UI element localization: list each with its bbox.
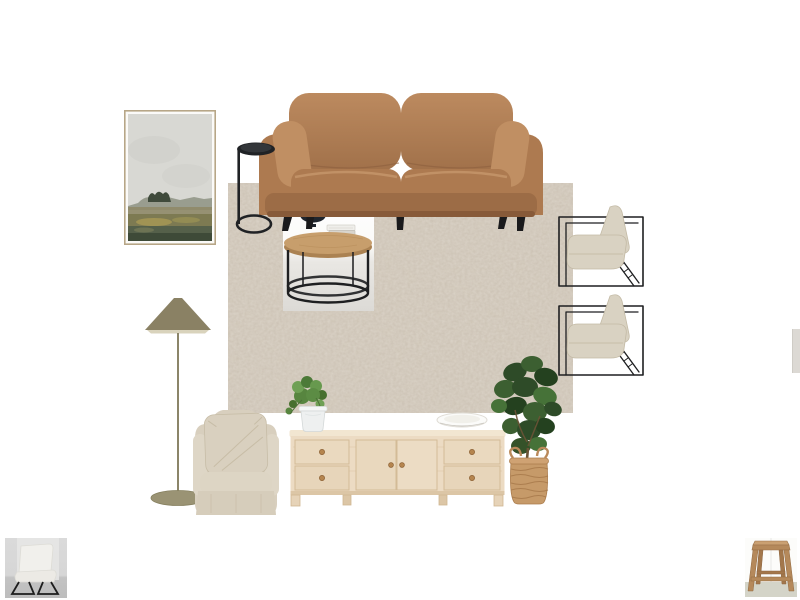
chair-seat-cushion [567,324,626,358]
woven-basket [510,448,549,504]
tan-leather-sofa[interactable] [255,87,547,232]
chair-seat-cushion [567,235,626,269]
thumbnail-rustic-wood-stool[interactable] [745,538,797,597]
lamp-shade [145,298,211,330]
wall-art-graphic [124,110,216,245]
partial-item-right-edge[interactable] [792,329,800,373]
sofa-base-shadow [267,211,535,217]
slipcover-armchair[interactable] [189,394,283,518]
framed-landscape-art[interactable] [124,110,216,245]
console-bottom-rail [291,491,505,495]
armchair-pillow [204,413,268,475]
white-bowl[interactable] [436,412,488,429]
console-doors [356,440,437,490]
side-table-graphic [232,140,276,236]
armchair-graphic [189,394,283,518]
whitewashed-tv-console[interactable] [289,427,506,507]
lamp-stem [177,333,179,494]
lamp-shade-inner [147,330,209,334]
thumbnail-white-accent-chair[interactable] [5,538,67,598]
console-legs [291,495,503,506]
console-graphic [289,427,506,507]
thumb-chair-graphic [5,538,67,598]
accent-chair-graphic [554,202,648,291]
thumb-chair-sled-legs [12,582,58,594]
wood-table-top [284,232,372,258]
moodboard-canvas [0,0,800,600]
armchair-seat [200,472,272,494]
plant-pot [299,407,327,432]
fig-graphic [487,354,569,510]
fiddle-leaf-fig[interactable] [487,354,569,510]
small-plant-graphic [282,374,334,434]
side-table-stem [237,150,240,224]
thumb-stool-graphic [745,538,797,597]
fig-foliage [491,356,564,454]
accent-armchair-1[interactable] [554,202,648,291]
sofa-graphic [255,87,547,232]
plate-well [444,415,480,423]
side-table-top-face [241,143,272,152]
plate-graphic [436,412,488,429]
art-canvas [128,114,212,241]
side-table-base-ring [237,216,271,233]
potted-trailing-plant[interactable] [282,374,334,434]
thumb-chair-back [19,544,53,573]
black-side-table[interactable] [232,140,276,236]
thumb-chair-seat [15,570,56,582]
